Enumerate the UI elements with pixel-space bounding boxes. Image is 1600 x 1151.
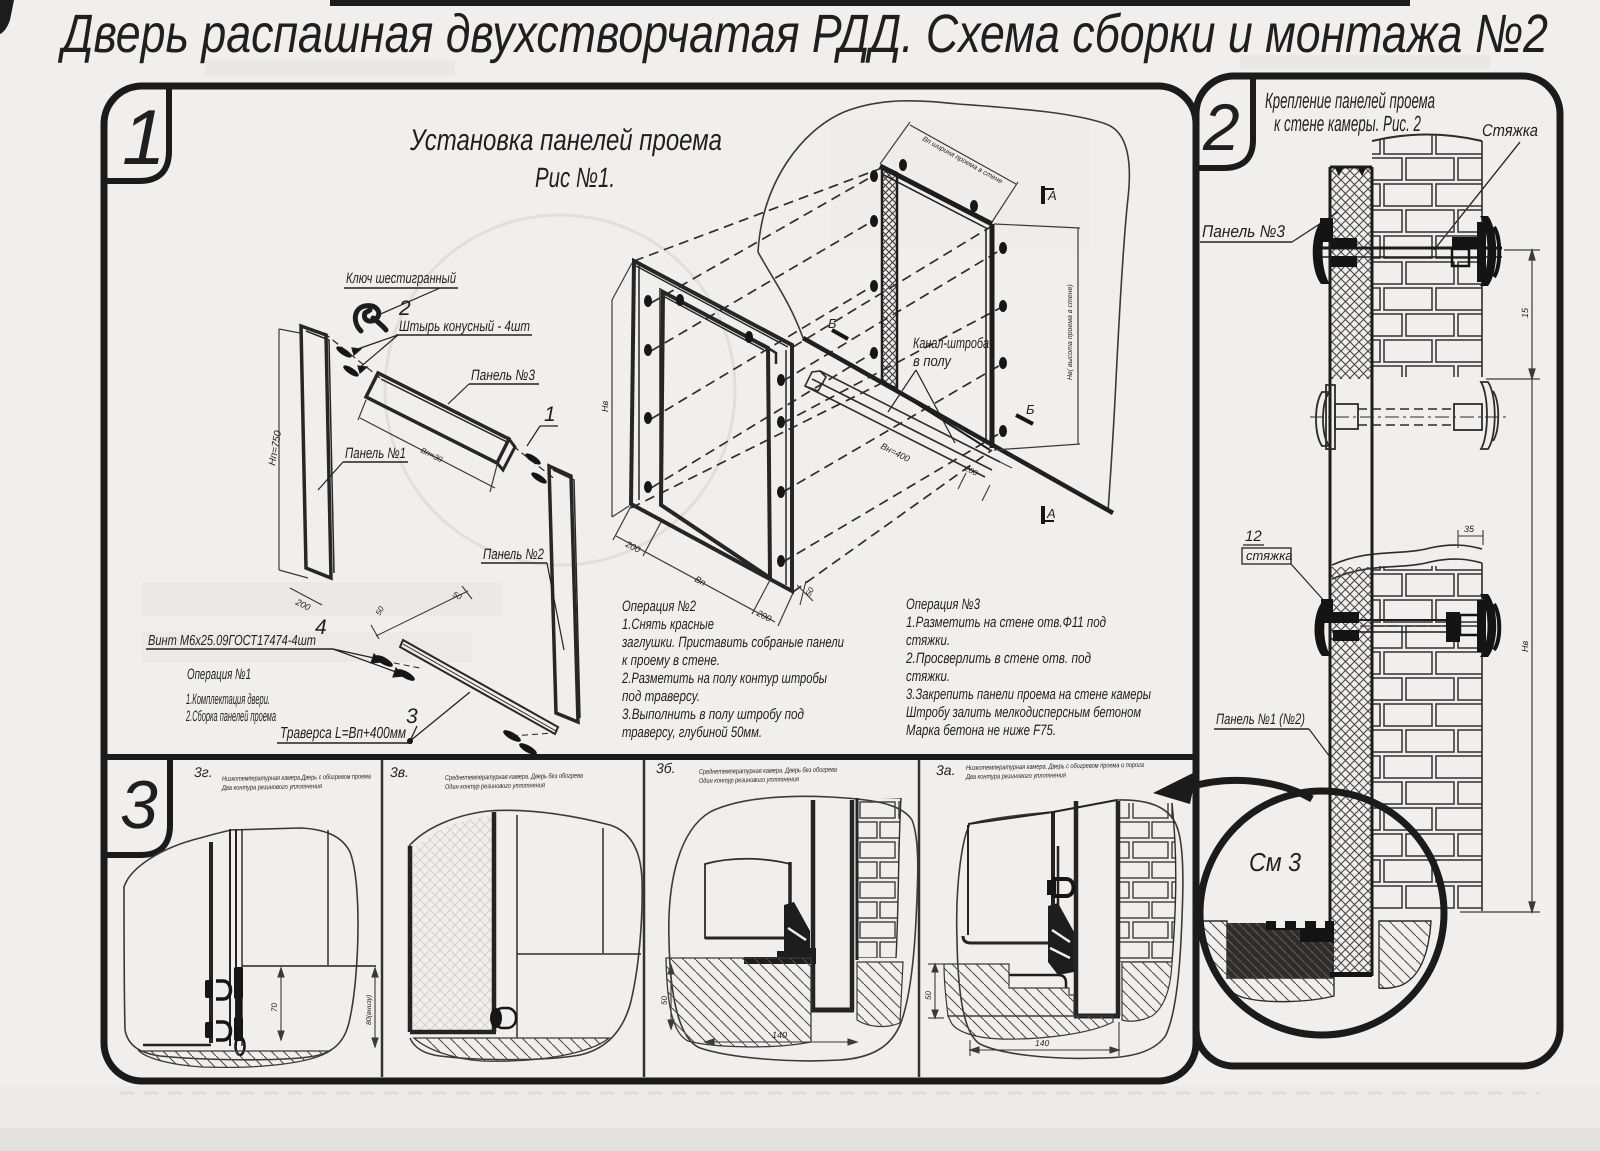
- svg-text:Б: Б: [1026, 402, 1035, 417]
- svg-text:Стяжка: Стяжка: [1482, 121, 1538, 140]
- svg-text:Операция №2: Операция №2: [622, 598, 696, 615]
- svg-text:2.Сборка панелей проема: 2.Сборка панелей проема: [186, 708, 276, 725]
- svg-text:2: 2: [398, 297, 411, 320]
- svg-text:Дверь распашная двухстворчатая: Дверь распашная двухстворчатая РДД. Схем…: [58, 4, 1548, 64]
- svg-text:заглушки. Приставить собраные: заглушки. Приставить собраные панели: [621, 634, 844, 651]
- svg-text:1.Снять красные: 1.Снять красные: [622, 616, 714, 633]
- svg-text:3б.: 3б.: [656, 760, 676, 776]
- svg-text:12: 12: [1245, 528, 1262, 545]
- svg-text:Операция №3: Операция №3: [906, 596, 980, 613]
- svg-text:50: 50: [660, 996, 669, 1005]
- svg-text:1.Комплектация двери.: 1.Комплектация двери.: [186, 691, 270, 708]
- svg-text:Ключ шестигранный: Ключ шестигранный: [346, 270, 456, 287]
- svg-text:Рис №1.: Рис №1.: [535, 162, 615, 193]
- svg-text:Панель №1: Панель №1: [345, 445, 406, 462]
- svg-text:Установка панелей проема: Установка панелей проема: [409, 124, 722, 157]
- svg-text:Траверса L=Вп+400мм: Траверса L=Вп+400мм: [280, 725, 406, 742]
- svg-text:15: 15: [1520, 307, 1530, 318]
- svg-text:Панель №3: Панель №3: [471, 367, 536, 384]
- svg-text:35: 35: [1464, 524, 1475, 534]
- svg-text:под траверсу.: под траверсу.: [622, 688, 700, 705]
- svg-text:1: 1: [544, 403, 556, 426]
- svg-text:стяжки.: стяжки.: [906, 632, 950, 649]
- svg-text:стяжка: стяжка: [1246, 548, 1292, 563]
- svg-text:Нв( высота проема в стене): Нв( высота проема в стене): [1066, 284, 1074, 380]
- svg-text:140: 140: [1035, 1038, 1049, 1048]
- svg-text:3.Выполнить в полу штробу под: 3.Выполнить в полу штробу под: [622, 706, 804, 723]
- svg-text:80(внизу): 80(внизу): [365, 995, 373, 1025]
- svg-text:2: 2: [1202, 90, 1240, 164]
- svg-text:Винт М6х25.09ГОСТ17474-4шт: Винт М6х25.09ГОСТ17474-4шт: [148, 633, 316, 649]
- svg-text:3а.: 3а.: [936, 762, 955, 778]
- svg-text:к проему в стене.: к проему в стене.: [622, 652, 720, 669]
- svg-text:Б: Б: [828, 316, 837, 331]
- svg-text:Панель №1 (№2): Панель №1 (№2): [1216, 711, 1305, 728]
- svg-text:Крепление панелей проема: Крепление панелей проема: [1265, 88, 1435, 113]
- svg-text:1.Разметить на стене отв.Ф11 п: 1.Разметить на стене отв.Ф11 под: [906, 614, 1106, 631]
- svg-text:3в.: 3в.: [390, 764, 409, 780]
- svg-text:Панель №2: Панель №2: [483, 546, 544, 563]
- svg-text:Операция №1: Операция №1: [187, 666, 251, 683]
- svg-text:3.Закрепить панели проема на с: 3.Закрепить панели проема на стене камер…: [906, 686, 1151, 703]
- svg-text:Штырь конусный - 4шт: Штырь конусный - 4шт: [399, 318, 530, 335]
- svg-text:50: 50: [924, 991, 933, 1000]
- svg-text:140: 140: [772, 1030, 787, 1040]
- svg-text:Канал-штроба: Канал-штроба: [913, 335, 989, 352]
- svg-text:Панель №3: Панель №3: [1202, 222, 1285, 241]
- svg-text:2.Разметить на полу контур штр: 2.Разметить на полу контур штробы: [621, 670, 827, 687]
- svg-text:4: 4: [315, 616, 327, 639]
- svg-text:стяжки.: стяжки.: [906, 668, 950, 685]
- svg-text:А: А: [1047, 188, 1057, 203]
- svg-text:1: 1: [122, 93, 165, 181]
- svg-text:Штробу залить мелкодисперсным: Штробу залить мелкодисперсным бетоном: [906, 704, 1141, 721]
- svg-text:Нв: Нв: [1520, 641, 1530, 652]
- svg-text:70: 70: [270, 1003, 279, 1012]
- svg-text:3: 3: [406, 705, 418, 728]
- svg-text:См 3: См 3: [1249, 847, 1301, 877]
- svg-text:Марка бетона не ниже F75.: Марка бетона не ниже F75.: [906, 722, 1056, 739]
- svg-text:к стене камеры. Рис. 2: к стене камеры. Рис. 2: [1274, 111, 1421, 136]
- svg-text:Нв: Нв: [600, 401, 610, 412]
- svg-text:3г.: 3г.: [194, 764, 213, 780]
- svg-text:2.Просверлить в стене отв. п: 2.Просверлить в стене отв. под: [905, 650, 1091, 667]
- svg-text:А: А: [1046, 506, 1056, 521]
- svg-text:3: 3: [120, 767, 158, 843]
- svg-text:траверсу, глубиной 50мм.: траверсу, глубиной 50мм.: [622, 724, 762, 741]
- svg-text:в полу: в полу: [913, 353, 952, 370]
